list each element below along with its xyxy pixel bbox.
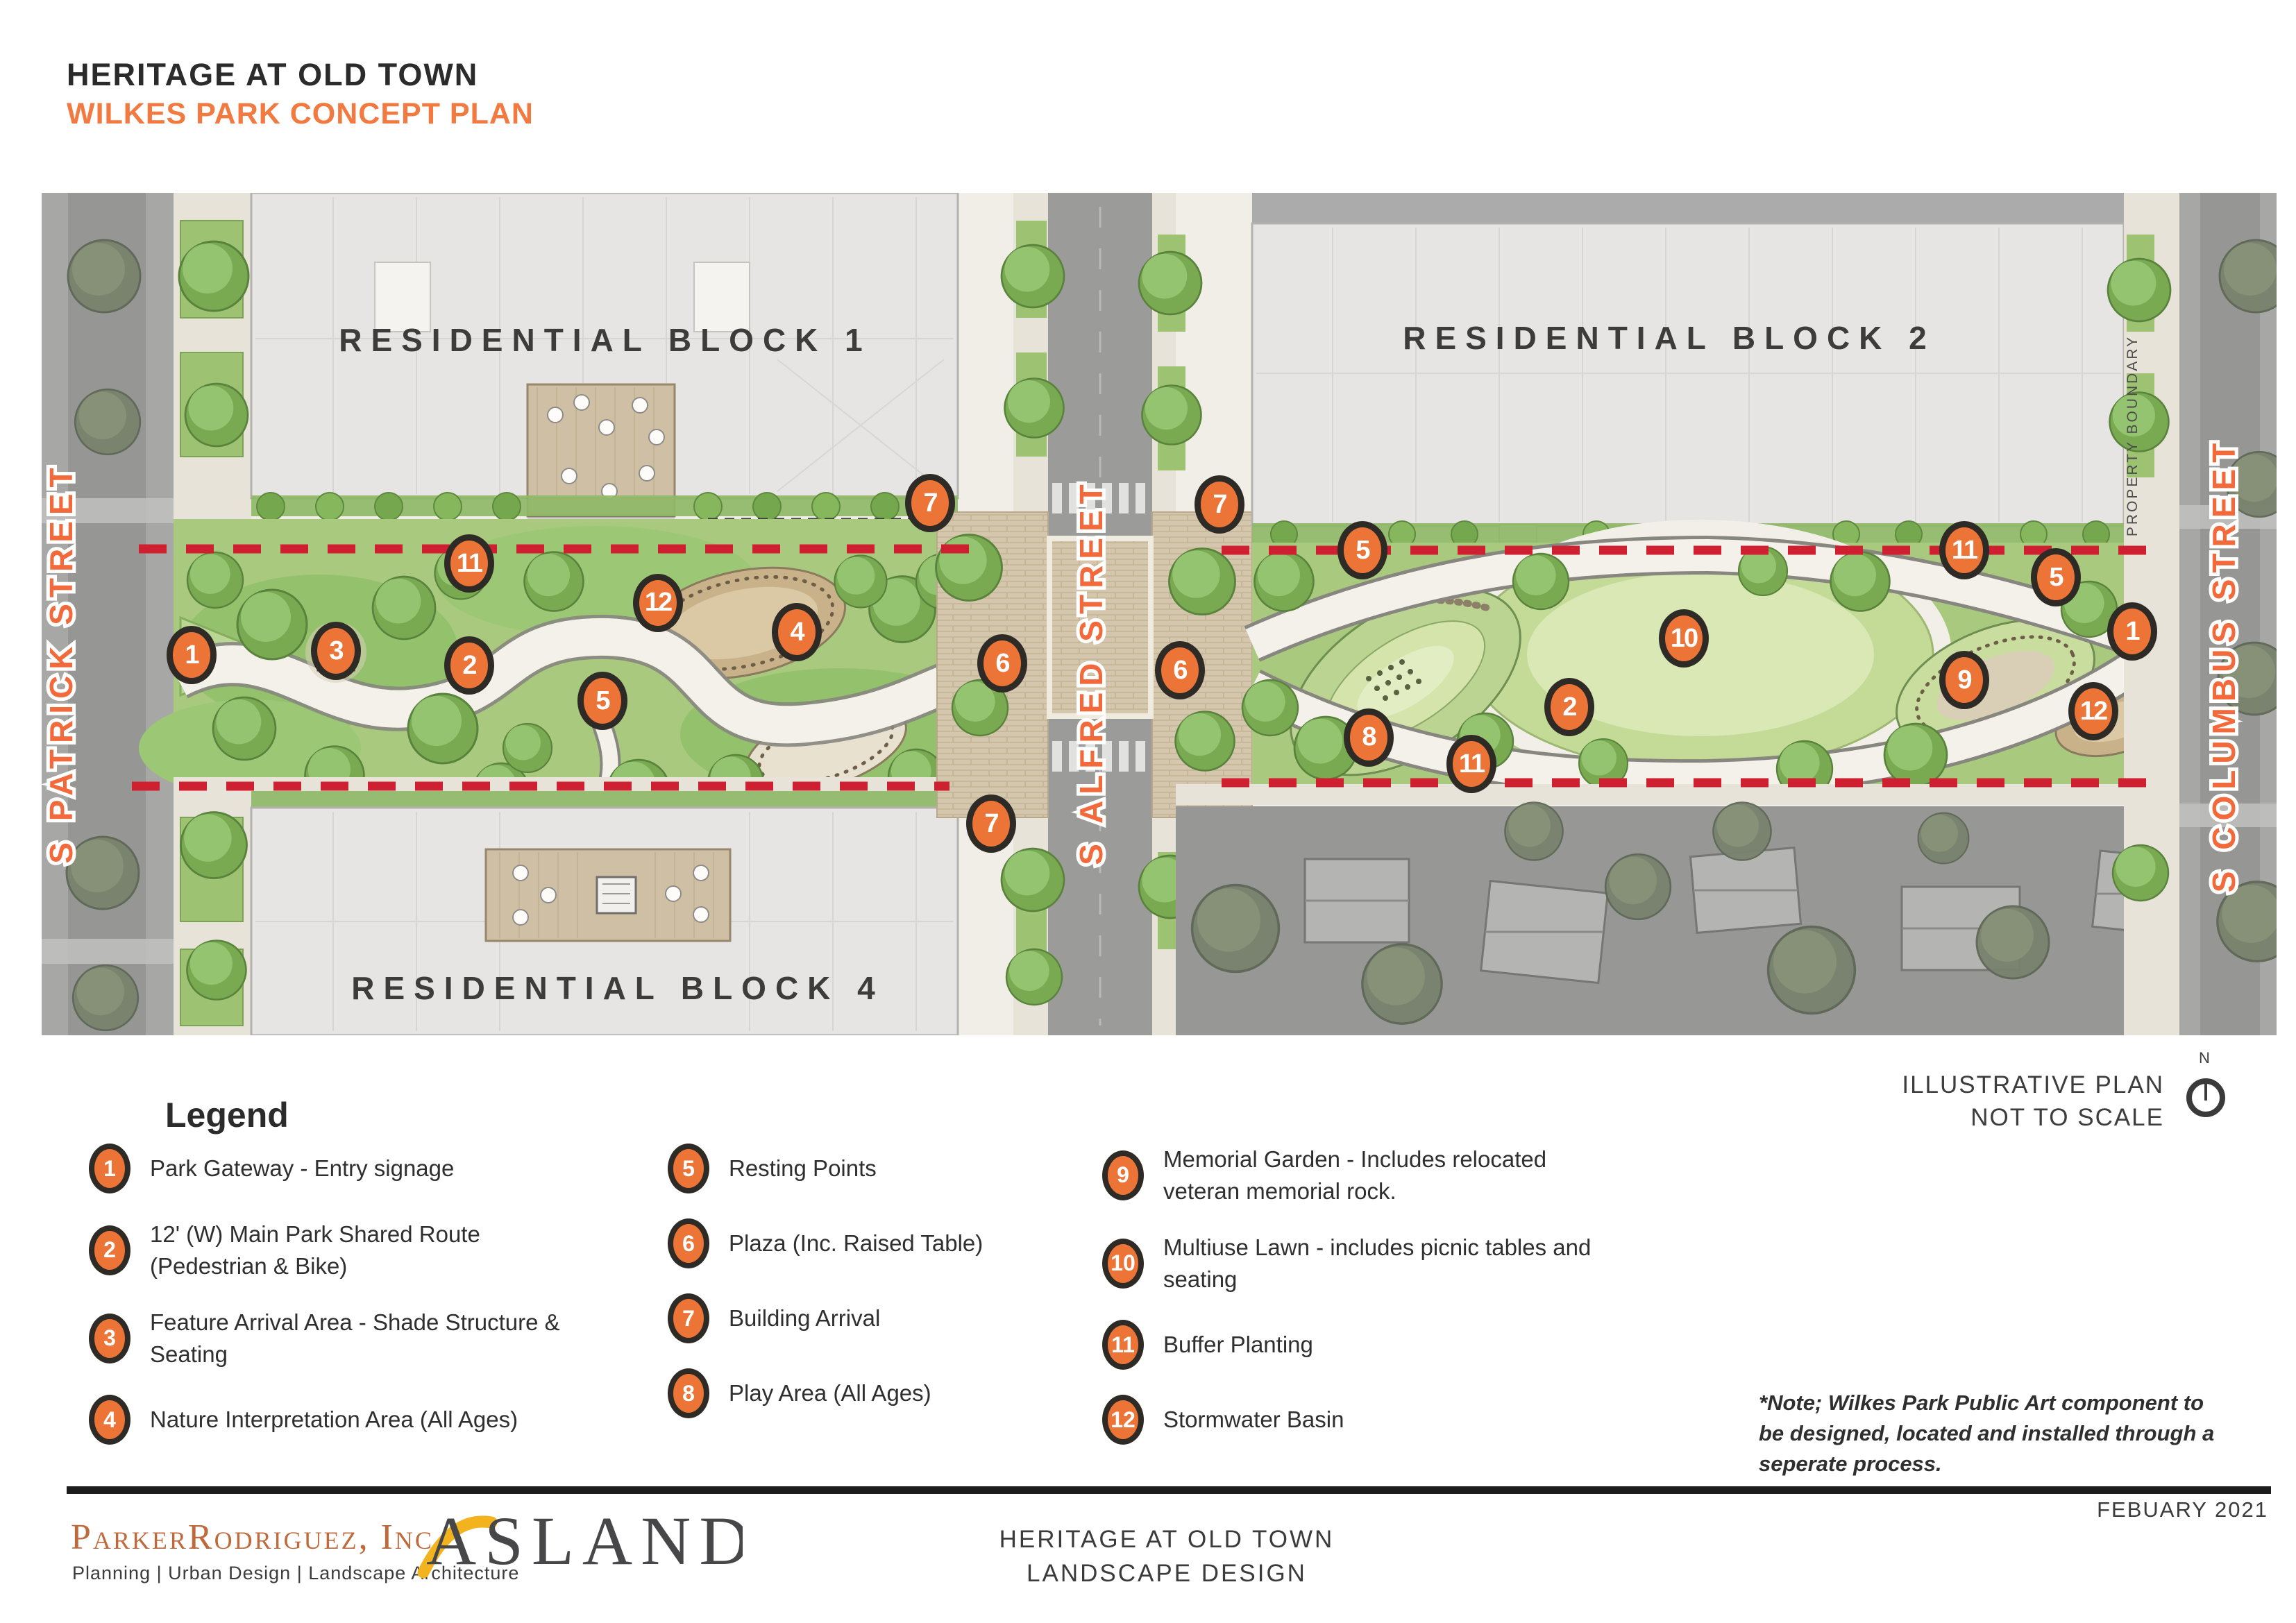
plan-marker-11: 11 <box>1446 735 1496 793</box>
legend-marker-icon: 4 <box>89 1395 130 1445</box>
block4-label: RESIDENTIAL BLOCK 4 <box>351 970 884 1006</box>
plan-marker-12: 12 <box>633 574 683 632</box>
legend-column-3: 9Memorial Garden - Includes relocated ve… <box>1102 1144 1630 1445</box>
legend-item-label: Building Arrival <box>729 1302 880 1334</box>
north-arrow-icon <box>2186 1078 2225 1117</box>
footer-project-line2: LANDSCAPE DESIGN <box>924 1556 1410 1590</box>
concept-plan-sheet: HERITAGE AT OLD TOWN WILKES PARK CONCEPT… <box>0 0 2296 1623</box>
legend-item-10: 10Multiuse Lawn - includes picnic tables… <box>1102 1232 1630 1295</box>
block4-buffer-planting <box>251 791 958 809</box>
parkerrodriguez-logo: ParkerRodriguez, Inc. <box>71 1517 445 1558</box>
footer-rule <box>67 1486 2271 1494</box>
plan-marker-5: 5 <box>1337 521 1387 579</box>
legend-marker-icon: 6 <box>668 1218 709 1268</box>
alfred-street-label: S ALFRED STREET <box>1073 478 1109 865</box>
patrick-street-label: S PATRICK STREET <box>43 461 79 863</box>
legend-column-2: 5Resting Points6Plaza (Inc. Raised Table… <box>668 1144 1098 1418</box>
legend-marker-icon: 5 <box>668 1144 709 1193</box>
legend-heading: Legend <box>165 1095 289 1135</box>
columbus-street-label: S COLUMBUS STREET <box>2206 437 2242 892</box>
legend-marker-icon: 3 <box>89 1314 130 1363</box>
public-art-note-line3: seperate process. <box>1759 1449 2286 1479</box>
page-title: HERITAGE AT OLD TOWN <box>67 57 478 93</box>
plan-marker-12: 12 <box>2068 682 2118 740</box>
scale-note-line1: ILLUSTRATIVE PLAN <box>1902 1069 2164 1101</box>
legend-column-1: 1Park Gateway - Entry signage212' (W) Ma… <box>89 1144 575 1445</box>
plan-marker-1: 1 <box>167 626 217 684</box>
plan-marker-1: 1 <box>2107 602 2157 661</box>
public-art-note-line2: be designed, located and installed throu… <box>1759 1418 2286 1449</box>
plan-marker-2: 2 <box>1544 678 1594 736</box>
scale-note: ILLUSTRATIVE PLAN NOT TO SCALE <box>1902 1069 2164 1135</box>
footer-project-line1: HERITAGE AT OLD TOWN <box>924 1522 1410 1556</box>
plan-marker-8: 8 <box>1344 708 1394 767</box>
legend-item-9: 9Memorial Garden - Includes relocated ve… <box>1102 1144 1630 1207</box>
block1-label: RESIDENTIAL BLOCK 1 <box>339 322 872 358</box>
plan-marker-5: 5 <box>2031 548 2081 606</box>
legend-item-8: 8Play Area (All Ages) <box>668 1368 1098 1418</box>
plan-marker-6: 6 <box>1155 641 1205 699</box>
legend-marker-icon: 7 <box>668 1293 709 1343</box>
legend-item-4: 4Nature Interpretation Area (All Ages) <box>89 1395 575 1445</box>
asland-wordmark: ASLAND <box>426 1502 743 1579</box>
legend-marker-icon: 8 <box>668 1368 709 1418</box>
legend-item-12: 12Stormwater Basin <box>1102 1395 1630 1445</box>
legend-item-label: Nature Interpretation Area (All Ages) <box>150 1404 518 1436</box>
legend-item-label: Park Gateway - Entry signage <box>150 1153 454 1184</box>
public-art-note: *Note; Wilkes Park Public Art component … <box>1759 1388 2286 1479</box>
site-plan: RESIDENTIAL BLOCK 1 RESIDENTIAL BLOCK 2 … <box>42 193 2277 1035</box>
legend-item-7: 7Building Arrival <box>668 1293 1098 1343</box>
plan-marker-7: 7 <box>905 474 955 532</box>
plan-marker-9: 9 <box>1939 651 1989 709</box>
plan-marker-2: 2 <box>444 636 494 695</box>
legend-item-11: 11Buffer Planting <box>1102 1320 1630 1370</box>
compass-needle <box>2204 1082 2207 1101</box>
legend-item-label: Stormwater Basin <box>1163 1404 1344 1436</box>
legend-marker-icon: 11 <box>1102 1320 1144 1370</box>
legend-item-label: Feature Arrival Area - Shade Structure &… <box>150 1307 575 1370</box>
legend-item-label: Resting Points <box>729 1153 877 1184</box>
plan-marker-11: 11 <box>1939 521 1989 579</box>
legend-item-1: 1Park Gateway - Entry signage <box>89 1144 575 1193</box>
legend-item-6: 6Plaza (Inc. Raised Table) <box>668 1218 1098 1268</box>
block2-label: RESIDENTIAL BLOCK 2 <box>1403 320 1936 356</box>
legend-marker-icon: 1 <box>89 1144 130 1193</box>
legend-item-5: 5Resting Points <box>668 1144 1098 1193</box>
asland-logo: ASLAND <box>416 1492 743 1582</box>
plan-marker-6: 6 <box>977 634 1027 692</box>
legend-item-label: Multiuse Lawn - includes picnic tables a… <box>1163 1232 1621 1295</box>
legend-item-label: Memorial Garden - Includes relocated vet… <box>1163 1144 1621 1207</box>
aerial-bottom-right <box>1176 784 2277 1035</box>
site-plan-drawing: RESIDENTIAL BLOCK 1 RESIDENTIAL BLOCK 2 … <box>42 193 2277 1035</box>
footer-project-title: HERITAGE AT OLD TOWN LANDSCAPE DESIGN <box>924 1522 1410 1590</box>
property-boundary-label: PROPERTY BOUNDARY <box>2125 335 2141 536</box>
page-subtitle: WILKES PARK CONCEPT PLAN <box>67 97 534 131</box>
legend-item-label: Buffer Planting <box>1163 1329 1313 1361</box>
block1-buffer-planting <box>251 493 958 520</box>
plan-marker-5: 5 <box>577 672 627 730</box>
legend-marker-icon: 10 <box>1102 1239 1144 1289</box>
legend-marker-icon: 9 <box>1102 1150 1144 1200</box>
plan-marker-11: 11 <box>444 534 494 593</box>
public-art-note-line1: *Note; Wilkes Park Public Art component … <box>1759 1388 2286 1418</box>
plan-marker-10: 10 <box>1659 609 1709 668</box>
plan-marker-3: 3 <box>311 622 361 680</box>
legend-marker-icon: 2 <box>89 1225 130 1275</box>
footer-date: FEBUARY 2021 <box>2097 1497 2268 1522</box>
legend-item-label: 12' (W) Main Park Shared Route (Pedestri… <box>150 1218 575 1282</box>
legend-item-label: Play Area (All Ages) <box>729 1377 931 1409</box>
legend-item-2: 212' (W) Main Park Shared Route (Pedestr… <box>89 1218 575 1282</box>
plan-marker-7: 7 <box>1195 475 1244 534</box>
legend-item-label: Plaza (Inc. Raised Table) <box>729 1227 983 1259</box>
scale-note-line2: NOT TO SCALE <box>1902 1101 2164 1134</box>
legend-marker-icon: 12 <box>1102 1395 1144 1445</box>
plan-marker-4: 4 <box>772 603 822 661</box>
plan-marker-7: 7 <box>966 794 1016 853</box>
north-label: N <box>2199 1049 2210 1067</box>
legend-item-3: 3Feature Arrival Area - Shade Structure … <box>89 1307 575 1370</box>
